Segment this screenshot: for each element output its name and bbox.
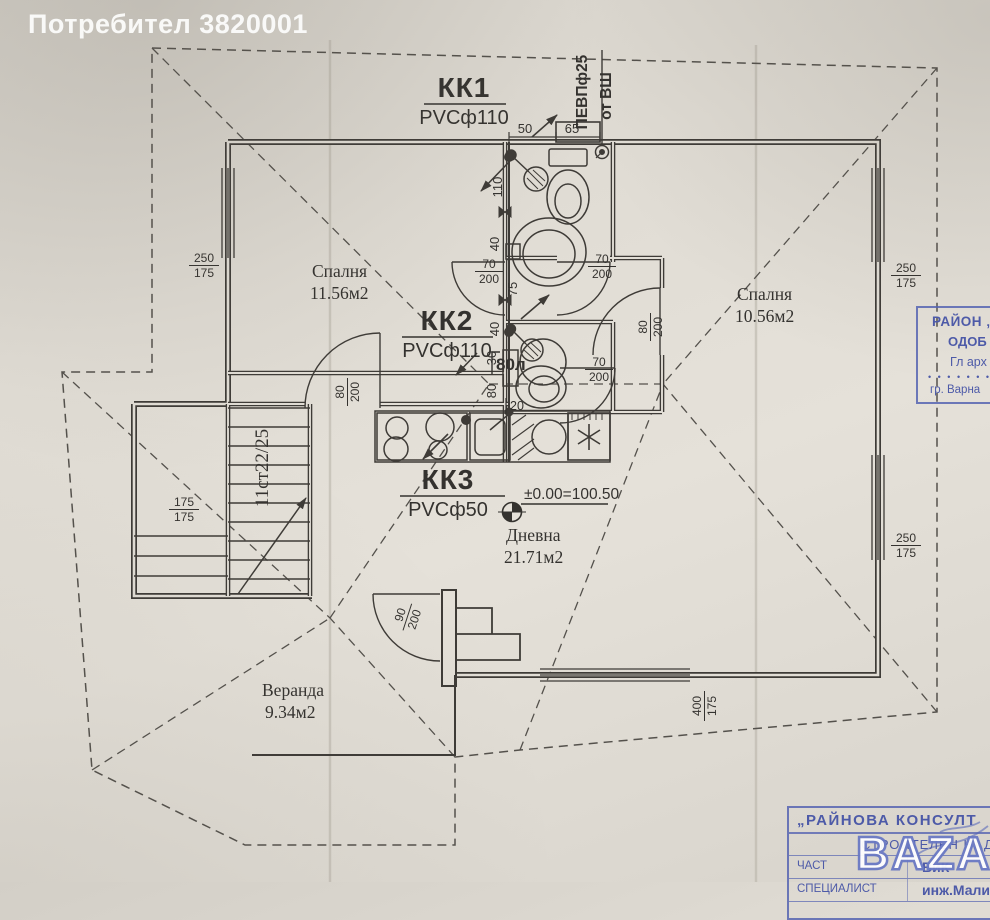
svg-text:175: 175 xyxy=(194,266,214,280)
window-dim-250-175: 250175 xyxy=(189,251,219,280)
veranda-steps xyxy=(456,608,520,660)
hatch-area xyxy=(512,415,534,460)
vent-line1: ПЕВПф25 xyxy=(574,54,591,129)
bedroom-right-area: 10.56м2 xyxy=(735,306,794,326)
approval-city: гр. Варна xyxy=(918,384,990,396)
svg-text:250: 250 xyxy=(896,531,916,545)
svg-text:250: 250 xyxy=(896,261,916,275)
door-dim-80-200: 80200 xyxy=(636,313,665,341)
living-name: Дневна xyxy=(506,525,561,545)
dim-40b: 40 xyxy=(487,322,502,336)
kk3-pipe: PVCф50 xyxy=(408,499,488,521)
svg-text:250: 250 xyxy=(194,251,214,265)
staircase xyxy=(134,408,310,594)
dim-80: 80 xyxy=(484,384,499,398)
kk2-label: КК2 PVCф110 xyxy=(402,305,493,362)
toilet-top-icon xyxy=(547,149,589,224)
svg-text:175: 175 xyxy=(896,276,916,290)
user-label: Потребител 3820001 xyxy=(28,9,308,40)
stairs-label: 11ст22/25 xyxy=(252,429,273,507)
svg-text:400: 400 xyxy=(690,696,704,716)
kk1-label: КК1 PVCф110 xyxy=(419,72,508,129)
level-value: ±0.00=100.50 xyxy=(524,486,620,503)
living-area: 21.71м2 xyxy=(504,547,563,567)
svg-text:175: 175 xyxy=(174,495,194,509)
svg-text:200: 200 xyxy=(651,317,665,337)
washbasin-icon xyxy=(506,218,586,286)
floor-plan-drawing: ±0.00=100.50 КК1 PVCф110 КК2 PVCф110 КК3… xyxy=(0,0,990,882)
vent-pipe-label: ПЕВПф25 от ВШ xyxy=(574,54,615,129)
dim-40: 40 xyxy=(487,237,502,251)
veranda-pillar xyxy=(442,590,456,686)
dim-50: 50 xyxy=(518,121,532,136)
bedroom-left-name: Спалня xyxy=(312,261,367,281)
appliance-asterisk-icon xyxy=(568,413,610,460)
window-dim-400-175: 400175 xyxy=(690,691,719,721)
svg-text:70: 70 xyxy=(595,252,609,266)
kitchen-counter xyxy=(375,411,610,462)
specialist-label: СПЕЦИАЛИСТ xyxy=(789,879,908,901)
scanned-floor-plan-photo: ±0.00=100.50 КК1 PVCф110 КК2 PVCф110 КК3… xyxy=(0,0,990,882)
dim-110: 110 xyxy=(490,177,505,198)
svg-text:200: 200 xyxy=(592,267,612,281)
svg-text:200: 200 xyxy=(479,272,499,286)
windows xyxy=(222,168,884,681)
door-dim-80-200: 80200 xyxy=(333,378,362,406)
approval-line3: Гл арх xyxy=(918,355,990,369)
basin-round-icon xyxy=(532,420,566,454)
roof-hip-lines xyxy=(62,48,937,770)
kk2-title: КК2 xyxy=(421,305,474,336)
veranda-name: Веранда xyxy=(262,680,324,700)
kk3-title: КК3 xyxy=(422,464,475,495)
svg-text:175: 175 xyxy=(705,696,719,716)
stair-dim-175-175: 175175 xyxy=(169,495,199,524)
bedroom-left-area: 11.56м2 xyxy=(310,283,369,303)
vent-line2: от ВШ xyxy=(598,72,615,120)
dim-20: 20 xyxy=(510,399,524,413)
svg-text:200: 200 xyxy=(589,370,609,384)
door-dim-70-200: 70200 xyxy=(585,355,613,384)
site-watermark: BAZAR xyxy=(856,826,990,880)
veranda-area: 9.34м2 xyxy=(265,702,315,722)
approval-dotted-line: • • • • • • • • • • • • xyxy=(918,375,990,379)
door-dim-90-200: 90200 xyxy=(389,599,425,635)
specialist-value: инж.Малинов xyxy=(908,879,990,901)
window-dim-250-175: 250175 xyxy=(891,531,921,560)
dim-65: 65 xyxy=(565,121,579,136)
svg-text:200: 200 xyxy=(348,382,362,402)
dim-30: 30 xyxy=(484,351,499,365)
svg-text:80: 80 xyxy=(636,320,650,334)
kk2-pipe: PVCф110 xyxy=(402,340,491,362)
level-mark: ±0.00=100.50 xyxy=(498,486,620,522)
approval-line1: РАЙОН „П xyxy=(918,314,990,329)
window-dim-250-175: 250175 xyxy=(891,261,921,290)
svg-text:175: 175 xyxy=(896,546,916,560)
svg-text:175: 175 xyxy=(174,510,194,524)
svg-text:70: 70 xyxy=(592,355,606,369)
approval-line2: ОДОБ xyxy=(918,334,990,349)
roof-outline xyxy=(62,48,937,845)
dim-75: 75 xyxy=(505,282,520,296)
kk1-title: КК1 xyxy=(438,72,491,103)
kk1-pipe: PVCф110 xyxy=(419,107,508,129)
svg-text:80: 80 xyxy=(333,385,347,399)
approval-stamp: РАЙОН „П ОДОБ Гл арх • • • • • • • • • •… xyxy=(916,306,990,404)
svg-text:80л: 80л xyxy=(496,355,526,374)
svg-text:70: 70 xyxy=(482,257,496,271)
bedroom-right-name: Спалня xyxy=(737,284,792,304)
